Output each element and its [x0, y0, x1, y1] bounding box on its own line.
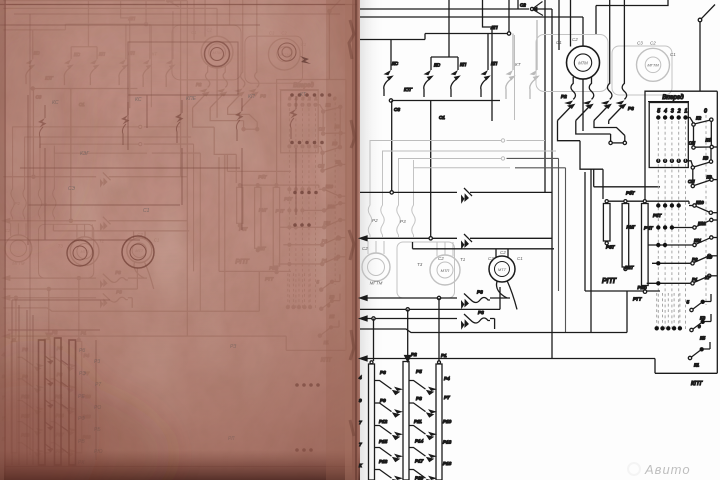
- svg-text:КС: КС: [392, 61, 399, 66]
- svg-text:Р13: Р13: [443, 440, 452, 445]
- svg-text:Р8: Р8: [416, 396, 422, 401]
- svg-text:РЬТ: РЬТ: [627, 225, 637, 230]
- svg-text:К9: К9: [707, 255, 713, 260]
- svg-text:Р2Т: Р2Т: [625, 265, 635, 270]
- svg-text:Р3: Р3: [628, 106, 634, 111]
- svg-text:МГТМ: МГТМ: [370, 281, 383, 286]
- svg-text:7: 7: [359, 420, 362, 425]
- svg-text:Р15: Р15: [379, 439, 388, 444]
- svg-text:4: 4: [664, 109, 667, 115]
- svg-text:С1: С1: [517, 256, 523, 261]
- svg-text:К7: К7: [705, 275, 711, 280]
- svg-text:РЧТ: РЧТ: [644, 226, 654, 231]
- svg-text:МТТ: МТТ: [498, 267, 507, 272]
- svg-text:СП: СП: [688, 179, 695, 184]
- svg-text:4: 4: [359, 375, 362, 380]
- svg-text:Р11: Р11: [414, 419, 422, 424]
- svg-text:С2: С2: [362, 246, 368, 251]
- svg-text:С3: С3: [488, 256, 494, 261]
- svg-text:С3: С3: [394, 107, 400, 112]
- svg-text:Р2: Р2: [692, 257, 698, 262]
- svg-text:РПТ: РПТ: [602, 278, 617, 285]
- svg-text:Т1: Т1: [460, 257, 466, 262]
- svg-text:Р3: Р3: [478, 310, 484, 315]
- svg-text:С2: С2: [500, 250, 506, 255]
- svg-text:К8: К8: [707, 175, 713, 180]
- svg-text:Т3: Т3: [417, 262, 423, 267]
- svg-text:КП: КП: [491, 61, 498, 66]
- svg-text:Р4: Р4: [444, 376, 450, 381]
- svg-text:Р2: Р2: [372, 218, 378, 223]
- svg-text:С2: С2: [520, 3, 526, 8]
- svg-text:К1: К1: [694, 363, 700, 368]
- svg-text:С1: С1: [439, 115, 445, 120]
- svg-text:9: 9: [359, 398, 362, 403]
- svg-text:КПТ: КПТ: [691, 381, 703, 387]
- svg-text:К12: К12: [698, 221, 706, 226]
- svg-text:Р5Т: Р5Т: [653, 213, 663, 218]
- svg-text:К4: К4: [706, 138, 712, 143]
- svg-text:Р17: Р17: [415, 459, 424, 464]
- svg-text:К2: К2: [696, 116, 702, 121]
- svg-text:Р9: Р9: [380, 398, 386, 403]
- svg-text:Р18: Р18: [379, 459, 388, 464]
- svg-text:Р3: Р3: [400, 219, 406, 224]
- svg-text:Р3: Р3: [477, 290, 483, 295]
- svg-text:К11: К11: [694, 238, 702, 243]
- svg-text:КС: КС: [434, 63, 441, 68]
- svg-text:К6: К6: [703, 156, 709, 161]
- svg-text:Р6: Р6: [380, 370, 386, 375]
- svg-text:РТТ: РТТ: [633, 297, 643, 302]
- svg-text:Р10: Р10: [443, 419, 452, 424]
- svg-text:Авито: Авито: [644, 462, 691, 477]
- svg-text:КП: КП: [460, 62, 467, 67]
- svg-text:К: К: [359, 463, 362, 468]
- svg-text:Р16: Р16: [443, 461, 452, 466]
- svg-text:С1: С1: [670, 52, 676, 57]
- svg-text:СП: СП: [689, 141, 696, 146]
- svg-text:Р1Т: Р1Т: [638, 285, 648, 290]
- svg-text:7: 7: [359, 442, 362, 447]
- svg-text:КТГ: КТГ: [404, 87, 413, 92]
- svg-text:МГТМ: МГТМ: [647, 63, 659, 68]
- svg-text:2: 2: [677, 109, 681, 115]
- svg-text:3: 3: [671, 109, 674, 115]
- svg-text:Р7: Р7: [444, 395, 450, 400]
- svg-text:С2: С2: [572, 37, 578, 42]
- svg-text:0: 0: [704, 109, 707, 115]
- svg-text:МТП: МТП: [441, 268, 450, 273]
- svg-text:МТМ: МТМ: [578, 61, 588, 66]
- svg-text:С2: С2: [438, 256, 444, 261]
- svg-text:Р20: Р20: [415, 476, 424, 480]
- svg-text:Р1: Р1: [692, 277, 698, 282]
- svg-text:РЗТ: РЗТ: [606, 245, 616, 250]
- svg-text:Вперед: Вперед: [662, 94, 684, 101]
- svg-text:Р1: Р1: [441, 353, 447, 358]
- svg-text:Р2: Р2: [411, 352, 417, 357]
- svg-text:5: 5: [657, 109, 660, 115]
- svg-text:К10: К10: [696, 200, 704, 205]
- svg-text:Р12: Р12: [379, 419, 388, 424]
- svg-text:Р5: Р5: [416, 369, 422, 374]
- svg-text:С2: С2: [650, 41, 656, 46]
- svg-text:Р14: Р14: [415, 439, 424, 444]
- svg-text:К5: К5: [700, 336, 706, 341]
- svg-text:1: 1: [685, 109, 688, 115]
- svg-text:С3: С3: [637, 41, 643, 46]
- svg-text:Р2: Р2: [561, 94, 567, 99]
- svg-text:РбТ: РбТ: [626, 191, 636, 196]
